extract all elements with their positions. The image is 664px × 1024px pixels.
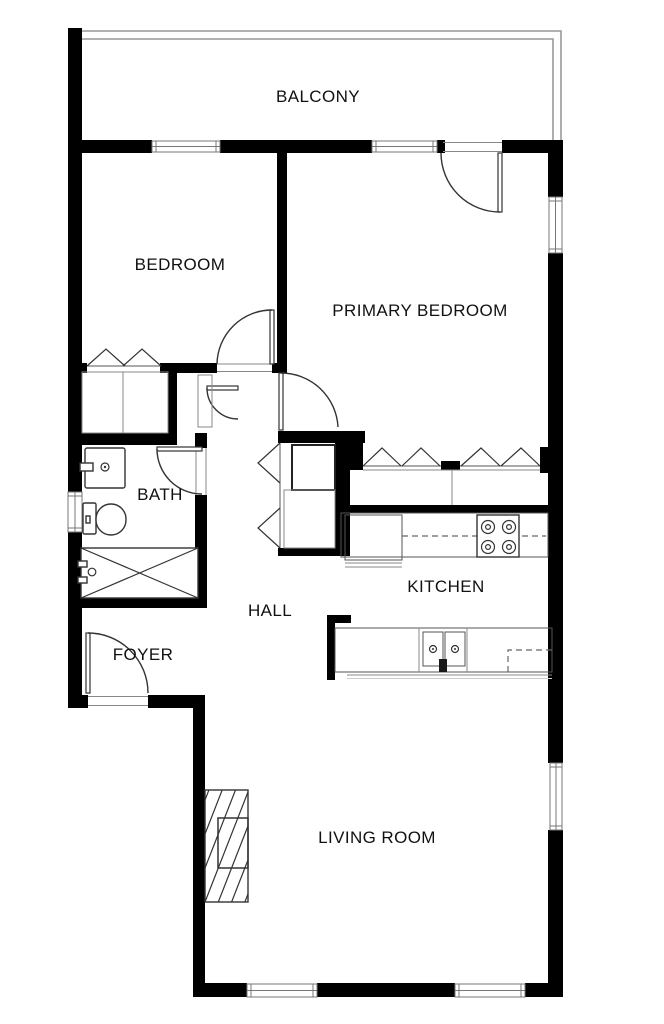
threshold-balcony-door [443, 143, 502, 152]
label-bedroom: BEDROOM [135, 255, 226, 274]
shower-valve-top [78, 561, 87, 567]
wall-kitchen-north [335, 505, 563, 513]
doors [86, 153, 502, 693]
shower-valve-bottom [78, 577, 87, 583]
window-primary-right [549, 197, 562, 253]
wall-bath-south [68, 598, 207, 608]
window-bedroom-top [152, 141, 220, 152]
label-primary-bedroom: PRIMARY BEDROOM [332, 301, 507, 320]
wall-living-south-3 [525, 983, 563, 997]
wall-primarycloset-mid [441, 461, 460, 470]
wall-primarycloset-east [540, 447, 550, 473]
closets [82, 349, 540, 548]
bath-fixtures [78, 448, 198, 598]
bedroom-closet [82, 349, 168, 433]
label-foyer: FOYER [113, 645, 174, 664]
wall-exterior-left-lower [68, 532, 82, 708]
wall-living-south-1 [193, 983, 247, 997]
hall-closet [258, 443, 335, 548]
wall-top-seg1 [68, 140, 152, 153]
wall-bedroom-divider [277, 143, 287, 373]
fireplace [205, 690, 248, 1004]
bath-vanity-sink [80, 448, 125, 488]
wall-living-south-2 [317, 983, 455, 997]
threshold-entry-door [88, 697, 148, 706]
wall-foyer-south-1 [68, 695, 88, 708]
door-primary-bedroom [279, 373, 338, 430]
label-living-room: LIVING ROOM [318, 828, 436, 847]
door-bedroom [217, 310, 274, 364]
wall-top-seg2 [220, 140, 372, 153]
wall-exterior-right-1 [548, 140, 563, 197]
wall-living-west [193, 700, 205, 997]
window-primary-top [372, 141, 437, 152]
kitchen-faucet [439, 659, 447, 672]
label-balcony: BALCONY [276, 87, 360, 106]
shower [78, 548, 198, 598]
toilet [83, 503, 126, 535]
window-bath-left [68, 492, 82, 532]
refrigerator [345, 515, 402, 567]
balcony-railing [82, 31, 561, 141]
label-kitchen: KITCHEN [407, 577, 484, 596]
window-living-bottom-right [455, 984, 525, 997]
wall-kitchen-stub-v [327, 615, 335, 680]
floor-plan-svg: BALCONY BEDROOM PRIMARY BEDROOM BATH KIT… [0, 0, 664, 1024]
floor-plan-page: BALCONY BEDROOM PRIMARY BEDROOM BATH KIT… [0, 0, 664, 1024]
wall-bath-north-2 [195, 433, 207, 448]
wall-exterior-left-upper [68, 28, 82, 492]
cooktop-stove [477, 515, 519, 557]
wall-bath-north-1 [68, 433, 177, 445]
wall-bedroom-closet-east [168, 365, 177, 443]
wall-exterior-right-3 [548, 830, 563, 983]
label-bath: BATH [137, 485, 183, 504]
door-thresholds [88, 143, 502, 706]
window-living-bottom-left [247, 984, 317, 997]
wall-hallcloset-south [278, 548, 350, 556]
dishwasher [508, 650, 552, 672]
threshold-bath-door [196, 448, 206, 495]
wall-primarycloset-west [337, 431, 363, 470]
door-balcony [441, 153, 502, 212]
primary-closets [363, 448, 540, 505]
label-hall: HALL [248, 601, 292, 620]
threshold-bedroom-door [217, 364, 272, 372]
kitchen-sink [423, 632, 465, 672]
window-living-right [550, 763, 562, 830]
